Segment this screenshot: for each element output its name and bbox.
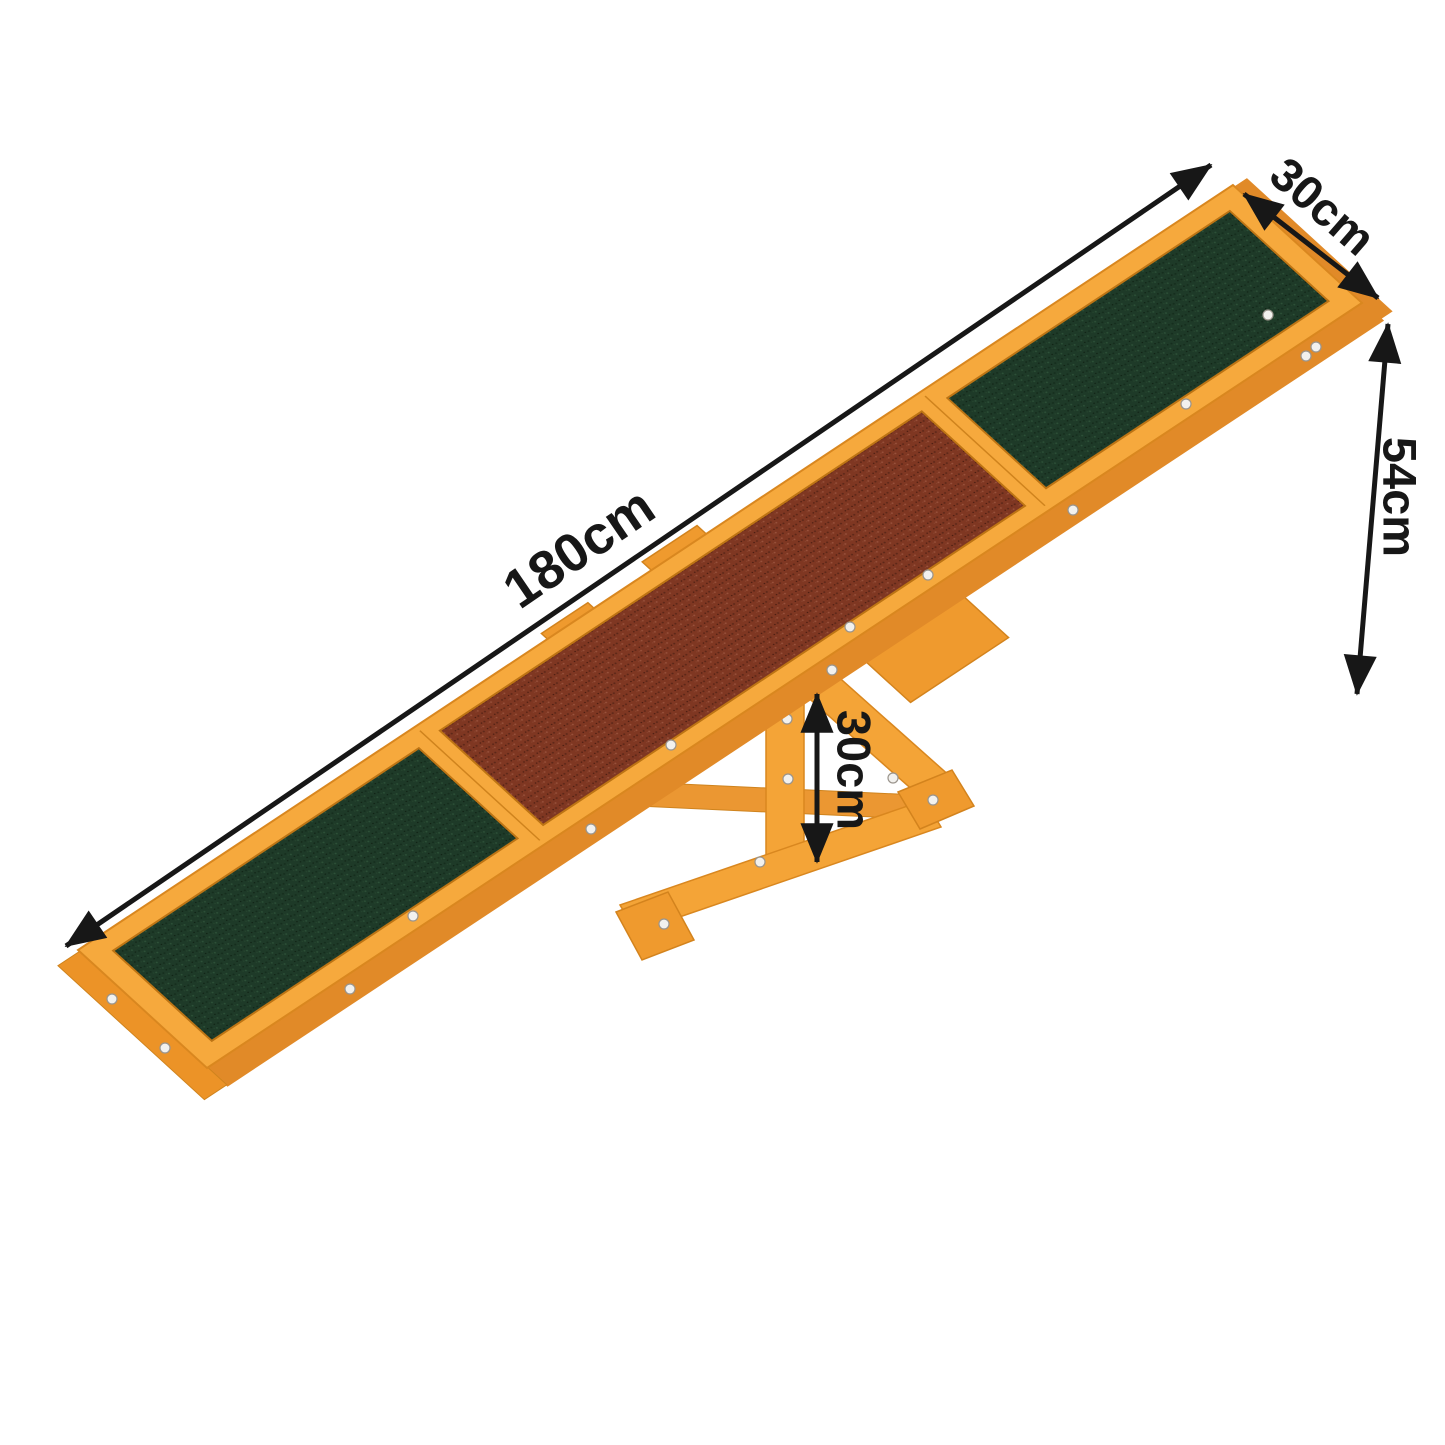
plank-side-face: [207, 302, 1384, 1087]
seesaw-plank: [47, 168, 1438, 1140]
screw: [783, 774, 793, 784]
screw: [1311, 342, 1321, 352]
screw: [659, 919, 669, 929]
screw: [408, 911, 418, 921]
screw: [888, 773, 898, 783]
screw: [586, 824, 596, 834]
length-dimension: 180cm: [66, 165, 1211, 946]
pivot-height-label: 30cm: [828, 710, 881, 830]
screw: [755, 857, 765, 867]
screw: [1263, 310, 1273, 320]
screw: [107, 994, 117, 1004]
screw: [827, 665, 837, 675]
screw: [1068, 505, 1078, 515]
end-height-dimension: 54cm: [1357, 324, 1427, 694]
screw: [666, 740, 676, 750]
end-height-label: 54cm: [1374, 437, 1427, 557]
screw: [928, 795, 938, 805]
length-arrow: [66, 165, 1211, 946]
seesaw-diagram: 180cm 30cm 54cm 30cm: [0, 0, 1445, 1445]
screw: [160, 1043, 170, 1053]
product-dimension-image: 180cm 30cm 54cm 30cm: [0, 0, 1445, 1445]
screw: [845, 622, 855, 632]
screw: [1301, 351, 1311, 361]
screw: [345, 984, 355, 994]
screw: [923, 570, 933, 580]
screw: [1181, 399, 1191, 409]
